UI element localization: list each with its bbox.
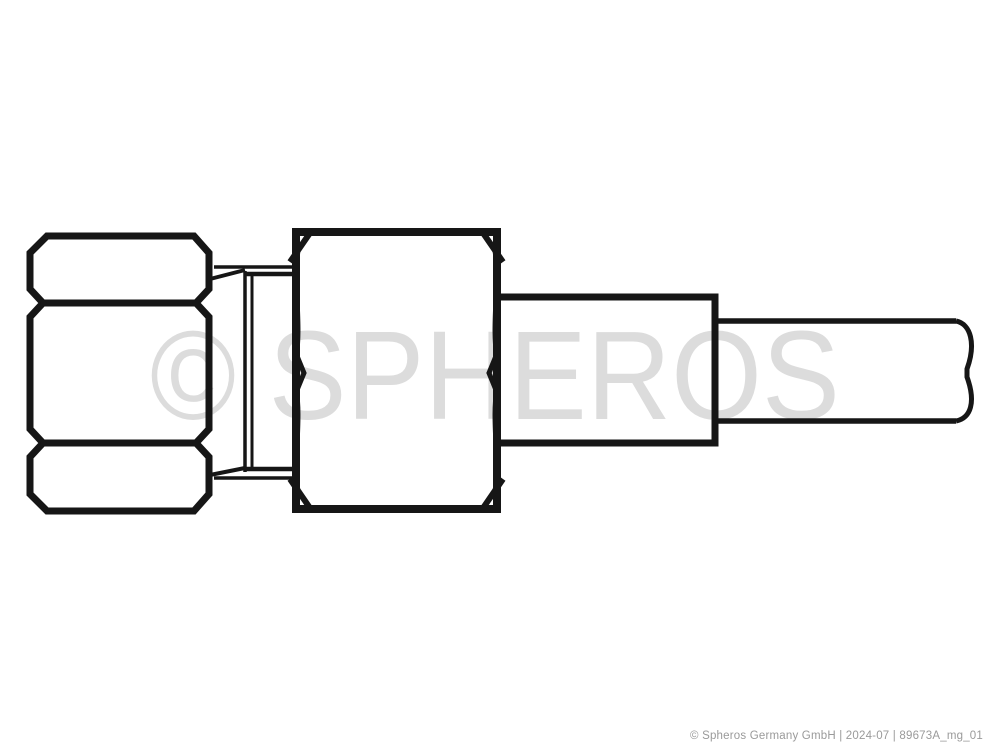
drawing-page: © SPHEROS (0, 0, 1000, 750)
footer-caption: © Spheros Germany GmbH | 2024-07 | 89673… (690, 730, 983, 742)
body-right-edge-arc-top (494, 248, 496, 355)
ferrule-bottom-chamfer (210, 468, 245, 475)
body-left-edge-arc-bottom (297, 391, 299, 494)
body-left-edge-arc-top (297, 248, 299, 355)
body-right-edge-arc-bottom (494, 391, 496, 494)
pipe-break-line (956, 321, 971, 421)
ferrule-top-chamfer (210, 270, 245, 279)
fitting-technical-drawing: © SPHEROS (0, 0, 1000, 750)
